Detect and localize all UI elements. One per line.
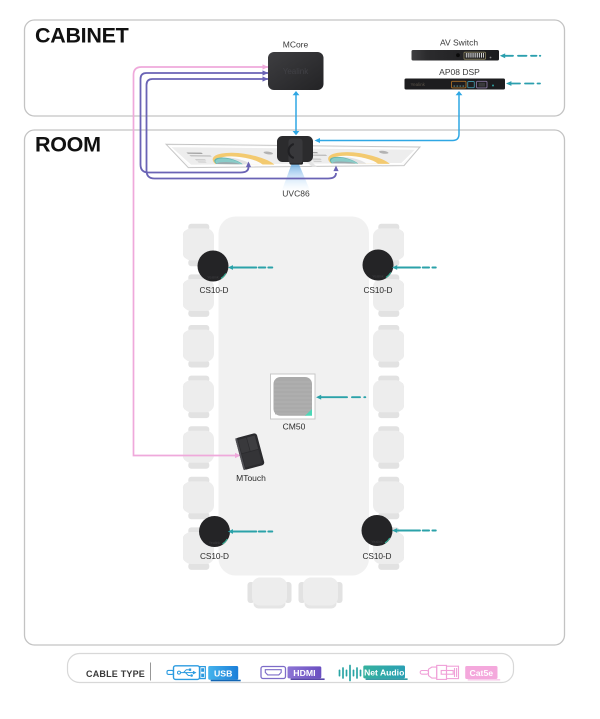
svg-text:CS10-D: CS10-D: [200, 551, 229, 561]
svg-text:Cat5e: Cat5e: [469, 668, 493, 678]
svg-text:CABINET: CABINET: [35, 24, 129, 48]
svg-text:Yealink: Yealink: [411, 82, 426, 87]
svg-text:HDMI: HDMI: [293, 668, 315, 678]
svg-text:Net Audio: Net Audio: [364, 668, 404, 678]
svg-text:MCore: MCore: [283, 40, 309, 50]
svg-text:Yealink: Yealink: [372, 275, 384, 279]
svg-text:CS10-D: CS10-D: [200, 285, 229, 295]
svg-text:USB: USB: [214, 669, 232, 679]
svg-text:Yealink: Yealink: [209, 541, 221, 545]
svg-text:Yealink: Yealink: [371, 540, 383, 544]
svg-text:CS10-D: CS10-D: [363, 551, 392, 561]
svg-text:CM50: CM50: [283, 422, 306, 432]
svg-text:CS10-D: CS10-D: [364, 285, 393, 295]
svg-text:CABLE TYPE: CABLE TYPE: [86, 669, 145, 679]
svg-text:Yealink: Yealink: [283, 67, 310, 76]
svg-text:ROOM: ROOM: [35, 133, 101, 157]
svg-text:AP08 DSP: AP08 DSP: [439, 67, 480, 77]
svg-text:Yealink: Yealink: [207, 276, 219, 280]
svg-text:UVC86: UVC86: [282, 189, 310, 199]
svg-text:MTouch: MTouch: [236, 473, 266, 483]
svg-text:AV Switch: AV Switch: [440, 38, 478, 48]
